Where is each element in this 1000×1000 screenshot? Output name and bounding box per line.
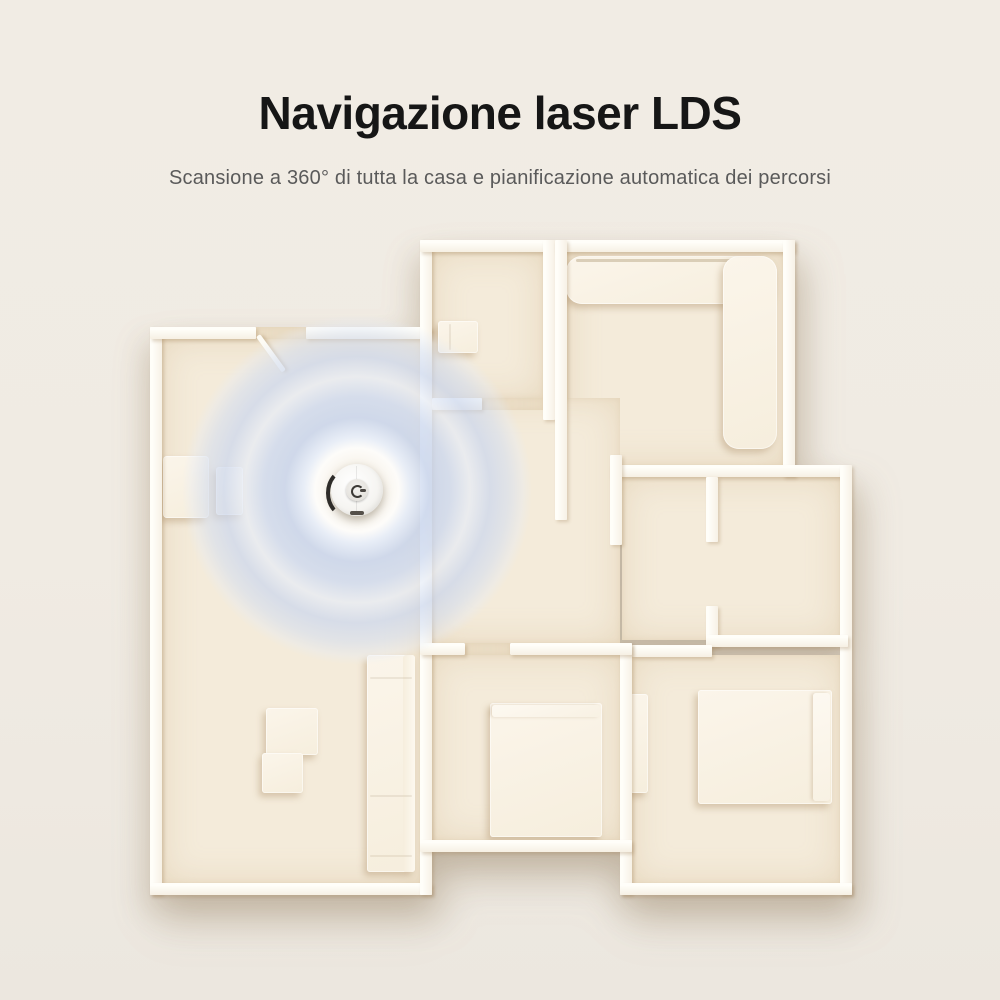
coffee-table xyxy=(262,753,303,793)
wall xyxy=(543,240,555,420)
wall xyxy=(620,883,852,895)
robot-lidar-turret xyxy=(346,479,368,501)
floor-doorway xyxy=(465,643,510,655)
bathroom-fixture xyxy=(438,321,478,353)
charging-dock xyxy=(163,456,209,518)
wall xyxy=(420,240,555,252)
floor-doorway xyxy=(482,398,543,410)
bed-pillow xyxy=(492,705,600,717)
wall xyxy=(150,327,162,895)
sofa-cushion-seam xyxy=(370,795,412,797)
wall xyxy=(420,240,432,895)
bed-pillow xyxy=(813,693,830,801)
lidar-mark-icon xyxy=(351,485,364,498)
wall xyxy=(150,883,432,895)
wall xyxy=(420,643,465,655)
wall xyxy=(632,645,712,657)
wall xyxy=(706,635,848,647)
wall xyxy=(610,465,848,477)
sofa-cushion-seam xyxy=(370,677,412,679)
single-bed xyxy=(490,703,602,837)
coffee-table xyxy=(266,708,318,755)
wall xyxy=(420,840,632,852)
living-room-sofa xyxy=(367,655,415,872)
side-table xyxy=(216,467,243,515)
wall xyxy=(783,240,795,477)
wall xyxy=(840,465,852,895)
wall xyxy=(306,327,432,339)
product-banner: Navigazione laser LDS Scansione a 360° d… xyxy=(0,0,1000,1000)
double-bed xyxy=(698,690,832,804)
fixture-seam xyxy=(449,324,451,350)
wall xyxy=(555,240,795,252)
floor-closet-room xyxy=(622,477,840,640)
wall xyxy=(555,240,567,520)
wall xyxy=(610,455,622,545)
sofa-cushion-seam xyxy=(370,855,412,857)
wall xyxy=(510,643,632,655)
wardrobe xyxy=(630,694,648,793)
floor-hallway xyxy=(432,398,620,643)
l-shaped-sofa xyxy=(723,256,777,449)
wall xyxy=(620,643,632,895)
floor-doorway xyxy=(256,327,306,339)
wall xyxy=(706,477,718,542)
sofa-backrest xyxy=(403,655,415,872)
floor-plan xyxy=(0,0,1000,1000)
robot-sensor-notch xyxy=(350,511,364,515)
lidar-mark-line xyxy=(360,489,366,492)
robot-vacuum xyxy=(331,464,383,516)
wall xyxy=(432,398,482,410)
wall xyxy=(150,327,256,339)
